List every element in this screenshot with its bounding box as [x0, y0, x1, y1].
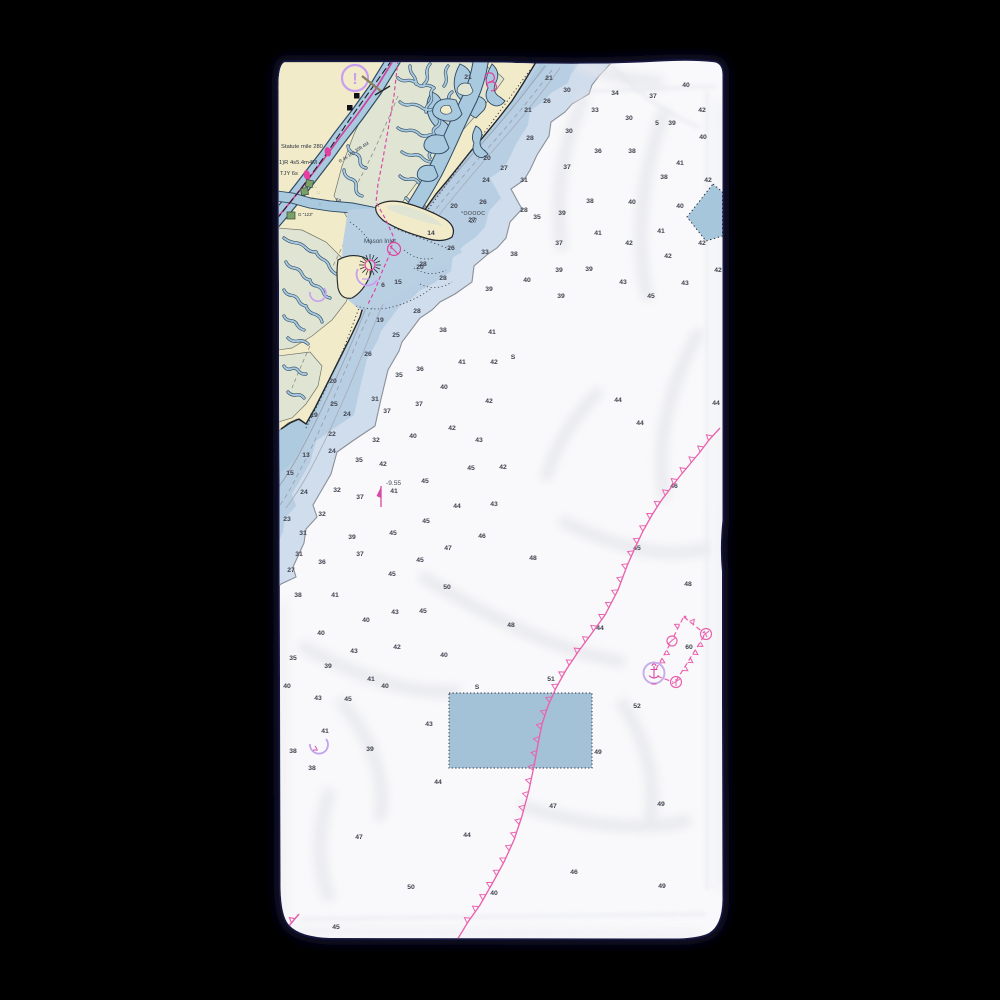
- svg-text:60: 60: [685, 644, 693, 651]
- svg-text:43: 43: [425, 721, 433, 728]
- svg-text:-9.55: -9.55: [386, 480, 401, 487]
- svg-text:47: 47: [355, 834, 363, 841]
- svg-text:45: 45: [389, 530, 397, 537]
- svg-text:32: 32: [333, 487, 341, 494]
- svg-text:45: 45: [421, 478, 429, 485]
- svg-text:48: 48: [529, 555, 537, 562]
- svg-text:40: 40: [362, 617, 370, 624]
- svg-text:43: 43: [391, 609, 399, 616]
- svg-text:20: 20: [450, 203, 458, 210]
- svg-text:39: 39: [324, 663, 332, 670]
- svg-text:Mason Inlet: Mason Inlet: [364, 238, 396, 245]
- svg-text:52: 52: [633, 703, 641, 710]
- svg-text:44: 44: [614, 397, 622, 404]
- svg-text:39: 39: [557, 293, 565, 300]
- svg-text:28: 28: [439, 275, 447, 282]
- svg-text:42: 42: [499, 464, 507, 471]
- svg-text:23: 23: [283, 516, 291, 523]
- svg-text:49: 49: [594, 749, 602, 756]
- svg-text:41: 41: [657, 228, 665, 235]
- svg-text:6: 6: [381, 282, 385, 289]
- svg-text:22: 22: [328, 431, 336, 438]
- svg-text:43: 43: [314, 695, 322, 702]
- svg-text:34: 34: [611, 90, 619, 97]
- svg-text:42: 42: [393, 644, 401, 651]
- svg-text:42: 42: [704, 177, 712, 184]
- svg-text:39: 39: [668, 120, 676, 127]
- svg-text:45: 45: [332, 924, 340, 931]
- svg-text:21: 21: [545, 75, 553, 82]
- svg-text:5: 5: [655, 120, 659, 127]
- svg-text:45: 45: [344, 696, 352, 703]
- svg-text:32: 32: [372, 437, 380, 444]
- svg-text:42: 42: [625, 240, 633, 247]
- svg-text:25: 25: [330, 401, 338, 408]
- svg-text:46: 46: [570, 869, 578, 876]
- svg-text:24: 24: [482, 177, 490, 184]
- svg-text:35: 35: [395, 372, 403, 379]
- svg-text:39: 39: [585, 266, 593, 273]
- svg-text:31: 31: [520, 177, 528, 184]
- svg-text:42: 42: [490, 359, 498, 366]
- svg-text:TJY 6s: TJY 6s: [280, 171, 298, 177]
- svg-text:42: 42: [448, 425, 456, 432]
- svg-text:38: 38: [294, 592, 302, 599]
- svg-text:49: 49: [658, 883, 666, 890]
- svg-text:15: 15: [286, 470, 294, 477]
- svg-text:39: 39: [348, 534, 356, 541]
- svg-text:44: 44: [712, 400, 720, 407]
- svg-text:19: 19: [310, 412, 318, 419]
- svg-text:26: 26: [543, 98, 551, 105]
- svg-text:S: S: [511, 354, 516, 361]
- svg-text:48: 48: [684, 581, 692, 588]
- svg-text:46: 46: [478, 533, 486, 540]
- svg-text:39: 39: [555, 267, 563, 274]
- svg-text:38: 38: [289, 748, 297, 755]
- svg-text:41: 41: [331, 592, 339, 599]
- svg-text:20: 20: [483, 155, 491, 162]
- svg-text:40: 40: [283, 683, 291, 690]
- svg-text:36: 36: [416, 366, 424, 373]
- svg-text:24: 24: [343, 411, 351, 418]
- svg-text:20: 20: [416, 264, 424, 271]
- svg-text:41: 41: [594, 230, 602, 237]
- svg-text:14: 14: [427, 230, 435, 237]
- svg-text:41: 41: [367, 676, 375, 683]
- svg-text:47: 47: [444, 545, 452, 552]
- svg-text:25: 25: [392, 332, 400, 339]
- svg-text:40: 40: [699, 134, 707, 141]
- svg-text:38: 38: [439, 327, 447, 334]
- svg-text:40: 40: [676, 203, 684, 210]
- svg-text:38: 38: [308, 765, 316, 772]
- svg-text:39: 39: [558, 210, 566, 217]
- svg-text:40: 40: [523, 277, 531, 284]
- svg-text:42: 42: [485, 398, 493, 405]
- svg-text:27: 27: [287, 567, 295, 574]
- svg-text:36: 36: [594, 148, 602, 155]
- svg-text:40: 40: [381, 683, 389, 690]
- svg-text:42: 42: [379, 461, 387, 468]
- svg-text:41: 41: [488, 329, 496, 336]
- svg-text:44: 44: [463, 832, 471, 839]
- svg-text:37: 37: [356, 551, 364, 558]
- svg-text:37: 37: [649, 93, 657, 100]
- svg-text:35: 35: [533, 214, 541, 221]
- svg-text:35: 35: [355, 457, 363, 464]
- svg-text:45: 45: [422, 518, 430, 525]
- svg-text:32: 32: [318, 511, 326, 518]
- svg-text:33: 33: [481, 249, 489, 256]
- svg-text:43: 43: [475, 437, 483, 444]
- svg-text:39: 39: [366, 746, 374, 753]
- svg-text:15: 15: [394, 279, 402, 286]
- svg-text:43: 43: [490, 501, 498, 508]
- svg-text:44: 44: [453, 503, 461, 510]
- svg-text:42: 42: [664, 253, 672, 260]
- svg-text:39: 39: [485, 286, 493, 293]
- svg-text:.'.': .'.': [318, 203, 322, 207]
- svg-text:..''.: ..''.: [310, 197, 314, 201]
- svg-text:37: 37: [383, 408, 391, 415]
- svg-text:48: 48: [507, 622, 515, 629]
- svg-text:G "123": G "123": [298, 212, 314, 217]
- svg-text:28: 28: [526, 135, 534, 142]
- svg-text:30: 30: [625, 115, 633, 122]
- svg-text:.'..': .'..': [316, 191, 321, 195]
- svg-text:28: 28: [520, 207, 528, 214]
- svg-text:40: 40: [317, 630, 325, 637]
- svg-text:21: 21: [524, 107, 532, 114]
- svg-text:31: 31: [371, 396, 379, 403]
- svg-text:40: 40: [409, 433, 417, 440]
- svg-text:41: 41: [390, 488, 398, 495]
- svg-text:38: 38: [510, 251, 518, 258]
- svg-text:45: 45: [647, 293, 655, 300]
- svg-text:40: 40: [628, 199, 636, 206]
- svg-text:28: 28: [413, 308, 421, 315]
- svg-text:19: 19: [376, 317, 384, 324]
- svg-text:!: !: [352, 71, 357, 88]
- svg-text:41: 41: [458, 359, 466, 366]
- svg-text:Statute mile 280: Statute mile 280: [281, 144, 323, 150]
- svg-text:13: 13: [302, 452, 310, 459]
- svg-text:40: 40: [682, 82, 690, 89]
- svg-text:49: 49: [657, 801, 665, 808]
- svg-text:35: 35: [289, 655, 297, 662]
- svg-text:45: 45: [388, 571, 396, 578]
- svg-text:40: 40: [440, 384, 448, 391]
- svg-text:50: 50: [407, 884, 415, 891]
- svg-text:42: 42: [714, 267, 722, 274]
- svg-text:45: 45: [416, 557, 424, 564]
- svg-text:33: 33: [591, 107, 599, 114]
- svg-text:43: 43: [681, 280, 689, 287]
- svg-text:24: 24: [300, 489, 308, 496]
- svg-text:41: 41: [676, 160, 684, 167]
- svg-text:37: 37: [563, 164, 571, 171]
- svg-text:40: 40: [440, 652, 448, 659]
- svg-text:26: 26: [364, 351, 372, 358]
- svg-text:40: 40: [490, 890, 498, 897]
- svg-text:S: S: [475, 684, 480, 691]
- svg-text:38: 38: [628, 148, 636, 155]
- svg-text:27: 27: [500, 165, 508, 172]
- svg-text:43: 43: [619, 279, 627, 286]
- svg-text:1)R 4s5.4m4M: 1)R 4s5.4m4M: [279, 160, 317, 166]
- svg-text:45: 45: [467, 465, 475, 472]
- svg-text:38: 38: [586, 198, 594, 205]
- svg-text:47: 47: [549, 803, 557, 810]
- svg-text:37: 37: [555, 240, 563, 247]
- svg-text:45: 45: [419, 608, 427, 615]
- svg-text:31: 31: [299, 530, 307, 537]
- svg-text:37: 37: [415, 401, 423, 408]
- svg-text:21: 21: [464, 74, 472, 81]
- svg-text:26: 26: [447, 245, 455, 252]
- svg-text:24: 24: [328, 448, 336, 455]
- svg-text:20: 20: [329, 378, 337, 385]
- svg-text:38: 38: [660, 174, 668, 181]
- svg-text:42: 42: [698, 107, 706, 114]
- svg-text:44: 44: [434, 779, 442, 786]
- svg-text:36: 36: [318, 559, 326, 566]
- svg-text:42: 42: [698, 240, 706, 247]
- svg-text:26: 26: [479, 199, 487, 206]
- svg-text:41: 41: [321, 728, 329, 735]
- svg-text:30: 30: [563, 87, 571, 94]
- svg-text:..'..: ..'..: [312, 185, 317, 189]
- svg-text:30: 30: [565, 128, 573, 135]
- svg-text:50: 50: [443, 584, 451, 591]
- svg-text:31: 31: [295, 551, 303, 558]
- svg-text:37: 37: [356, 494, 364, 501]
- svg-text:6s: 6s: [336, 198, 342, 204]
- svg-text:44: 44: [636, 420, 644, 427]
- svg-text:51: 51: [547, 676, 555, 683]
- svg-text:27: 27: [468, 217, 476, 224]
- svg-text:43: 43: [350, 648, 358, 655]
